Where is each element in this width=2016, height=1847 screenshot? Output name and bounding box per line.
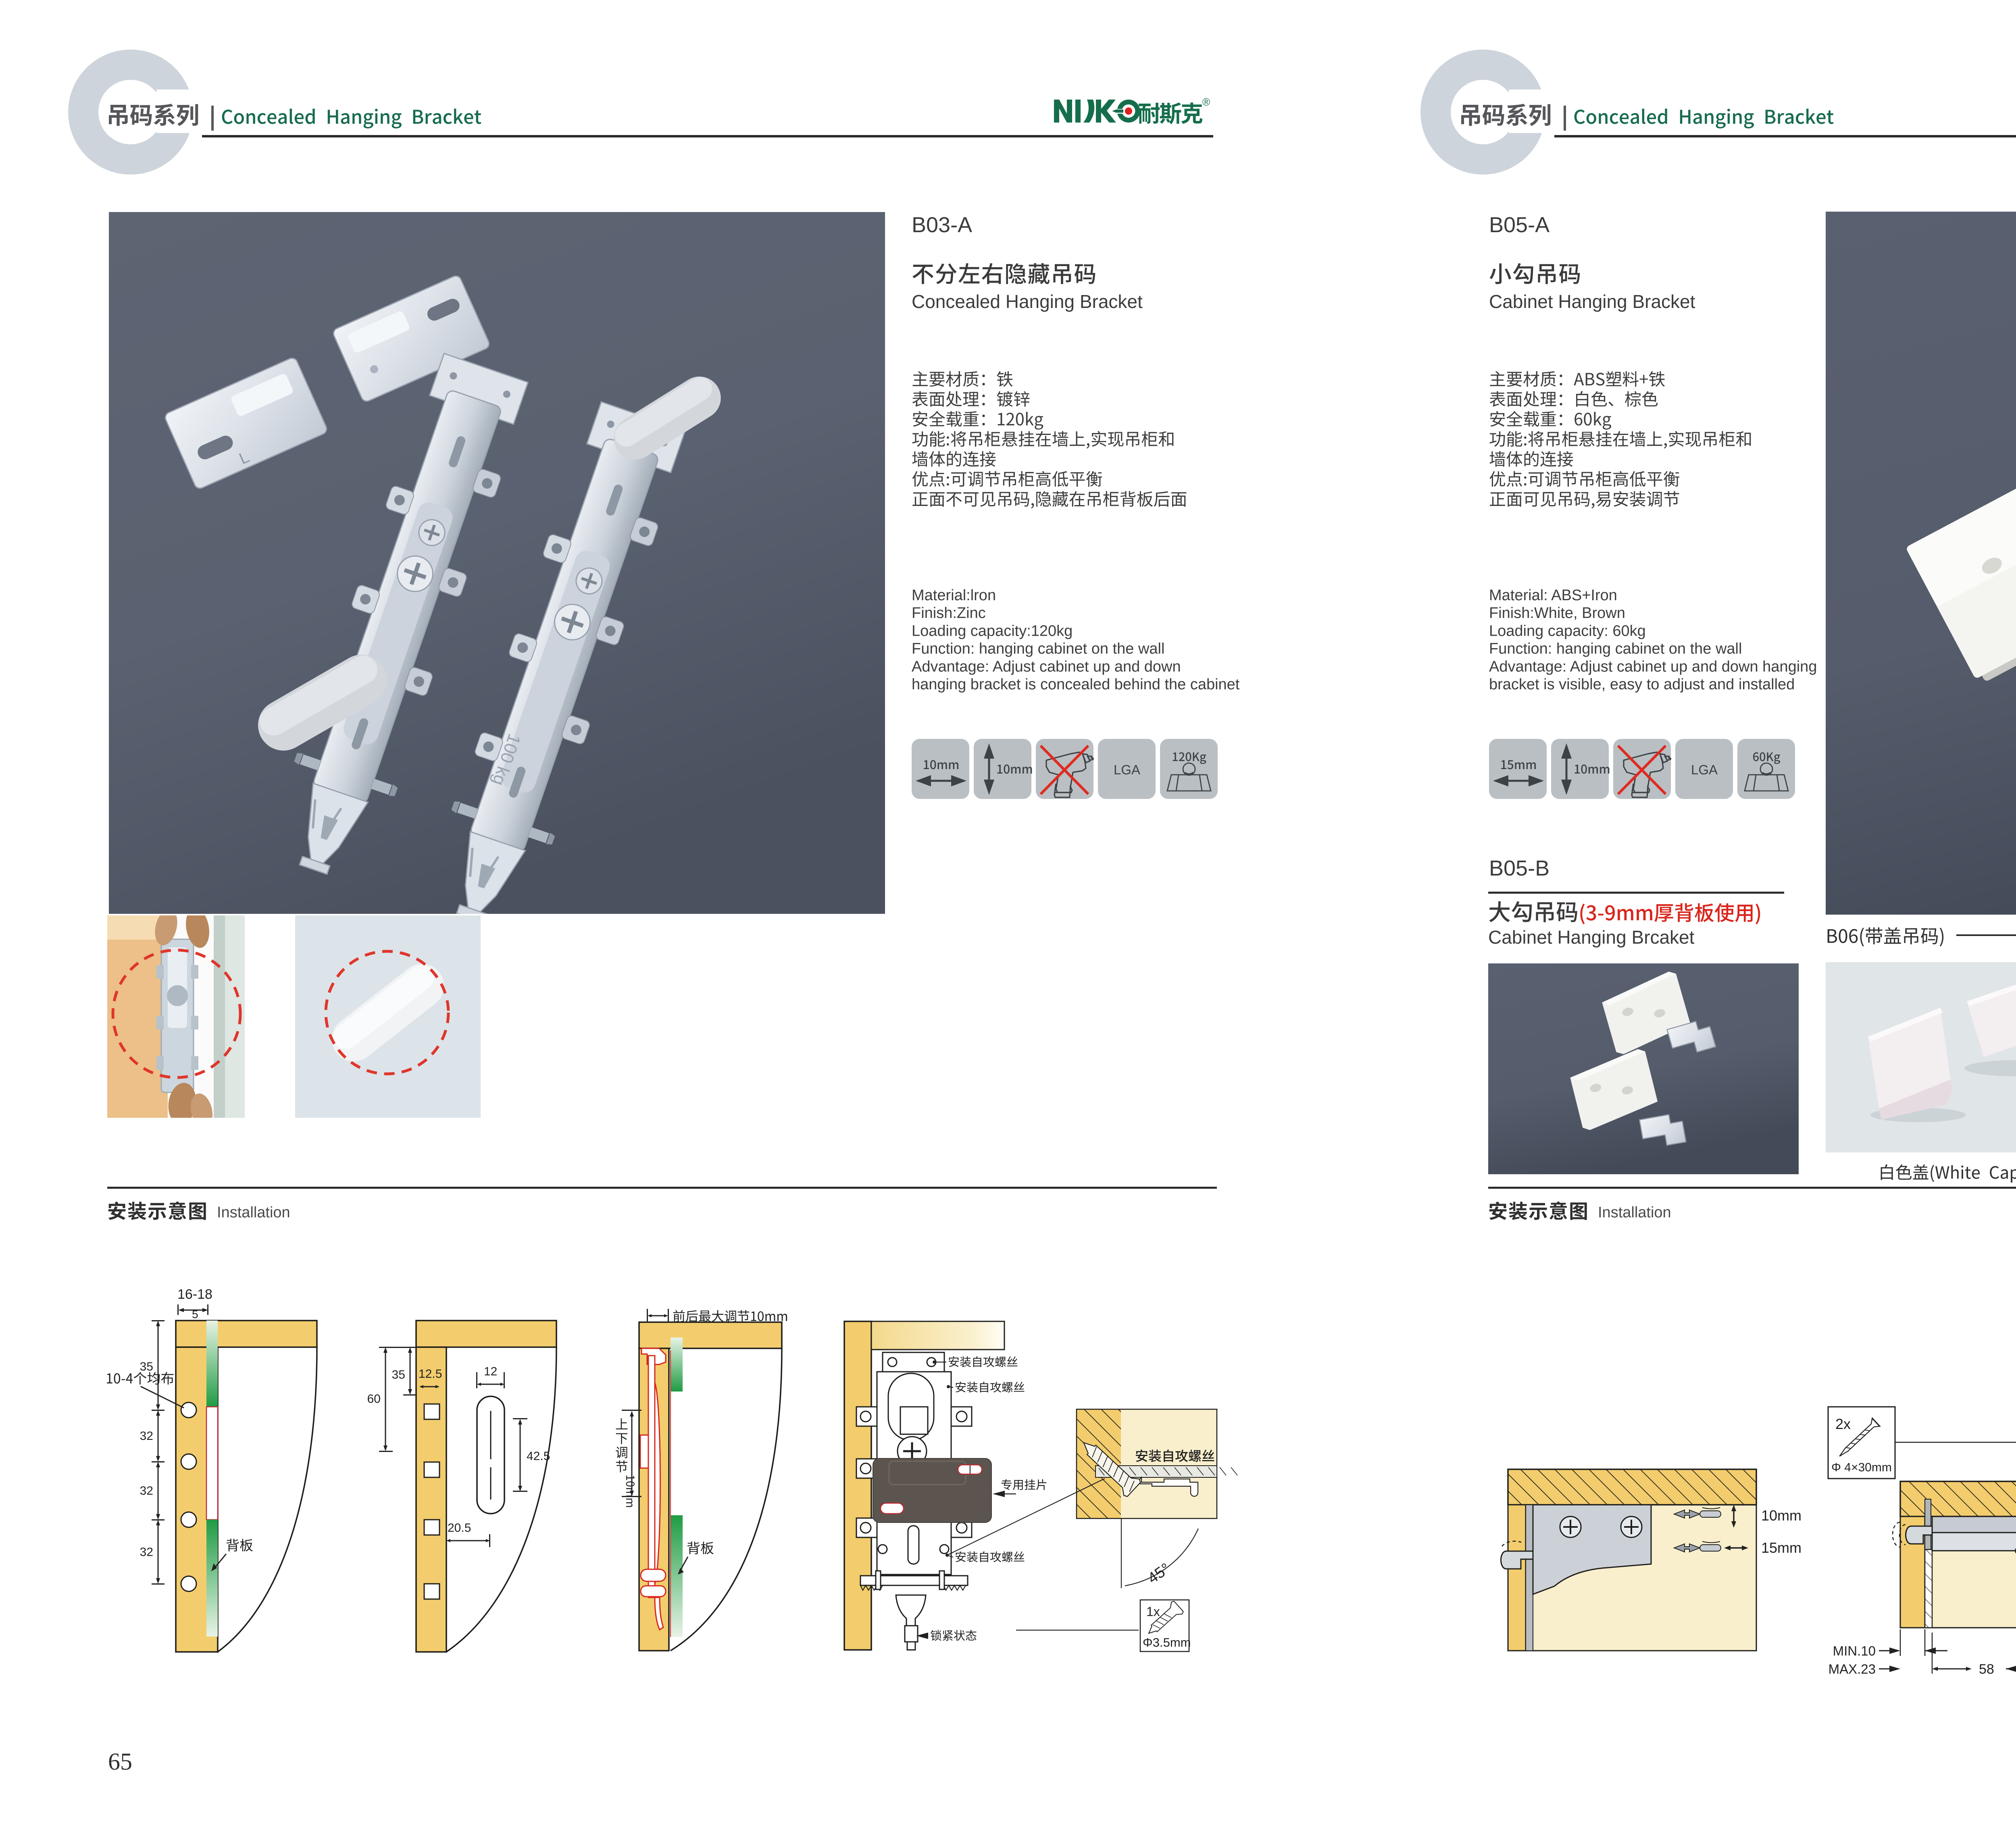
svg-text:Cabinet Hanging Bracket: Cabinet Hanging Bracket <box>1489 291 1695 312</box>
svg-text:Φ3.5mm: Φ3.5mm <box>1143 1635 1191 1649</box>
svg-text:MIN.10: MIN.10 <box>1833 1643 1876 1658</box>
svg-text:65: 65 <box>108 1748 132 1775</box>
svg-text:Advantage: Adjust cabinet up a: Advantage: Adjust cabinet up and down <box>912 658 1181 675</box>
svg-text:B03-A: B03-A <box>912 213 972 237</box>
svg-text:35: 35 <box>392 1368 405 1381</box>
svg-text:32: 32 <box>140 1429 153 1443</box>
svg-text:16-18: 16-18 <box>177 1287 212 1302</box>
svg-text:10mm: 10mm <box>1761 1507 1801 1524</box>
svg-text:Loading capacity: 60kg: Loading capacity: 60kg <box>1489 622 1646 639</box>
svg-text:Material: ABS+Iron: Material: ABS+Iron <box>1489 587 1617 604</box>
svg-text:Cabinet Hanging Brcaket: Cabinet Hanging Brcaket <box>1488 927 1695 948</box>
svg-text:5: 5 <box>192 1308 198 1321</box>
svg-text:Material:lron: Material:lron <box>912 587 996 604</box>
svg-text:20.5: 20.5 <box>448 1521 471 1535</box>
svg-text:®: ® <box>1202 96 1210 108</box>
svg-text:B05-B: B05-B <box>1489 856 1549 880</box>
svg-text:Finish:Zinc: Finish:Zinc <box>912 605 986 622</box>
svg-text:Installation: Installation <box>217 1204 290 1221</box>
svg-text:15mm: 15mm <box>1761 1539 1801 1556</box>
svg-text:MAX.23: MAX.23 <box>1829 1662 1876 1676</box>
svg-text:1x: 1x <box>1146 1604 1160 1619</box>
svg-text:58: 58 <box>1979 1662 1994 1677</box>
svg-text:Function: hanging cabinet on t: Function: hanging cabinet on the wall <box>1489 641 1742 657</box>
svg-text:Installation: Installation <box>1598 1204 1671 1221</box>
svg-text:12.5: 12.5 <box>419 1367 442 1381</box>
svg-text:35: 35 <box>140 1360 153 1373</box>
svg-text:Concealed Hanging Bracket: Concealed Hanging Bracket <box>912 291 1143 312</box>
svg-text:Advantage: Adjust cabinet up a: Advantage: Adjust cabinet up and down ha… <box>1489 658 1817 675</box>
svg-text:60: 60 <box>367 1392 381 1406</box>
svg-text:LGA: LGA <box>1691 762 1718 777</box>
svg-text:Loading capacity:120kg: Loading capacity:120kg <box>912 622 1073 639</box>
svg-text:B05-A: B05-A <box>1489 213 1549 237</box>
svg-text:bracket is visible, easy to ad: bracket is visible, easy to adjust and i… <box>1489 676 1795 693</box>
svg-text:32: 32 <box>140 1545 153 1559</box>
svg-text:42.5: 42.5 <box>527 1450 550 1463</box>
svg-text:LGA: LGA <box>1114 762 1140 777</box>
svg-text:12: 12 <box>484 1365 497 1378</box>
svg-text:32: 32 <box>140 1484 153 1498</box>
svg-text:2x: 2x <box>1835 1416 1851 1432</box>
svg-text:Φ 4×30mm: Φ 4×30mm <box>1831 1461 1892 1474</box>
svg-text:hanging bracket is concealed b: hanging bracket is concealed behind the … <box>912 676 1240 693</box>
svg-text:Function: hanging cabinet on t: Function: hanging cabinet on the wall <box>912 641 1164 657</box>
svg-text:Finish:White, Brown: Finish:White, Brown <box>1489 605 1625 622</box>
